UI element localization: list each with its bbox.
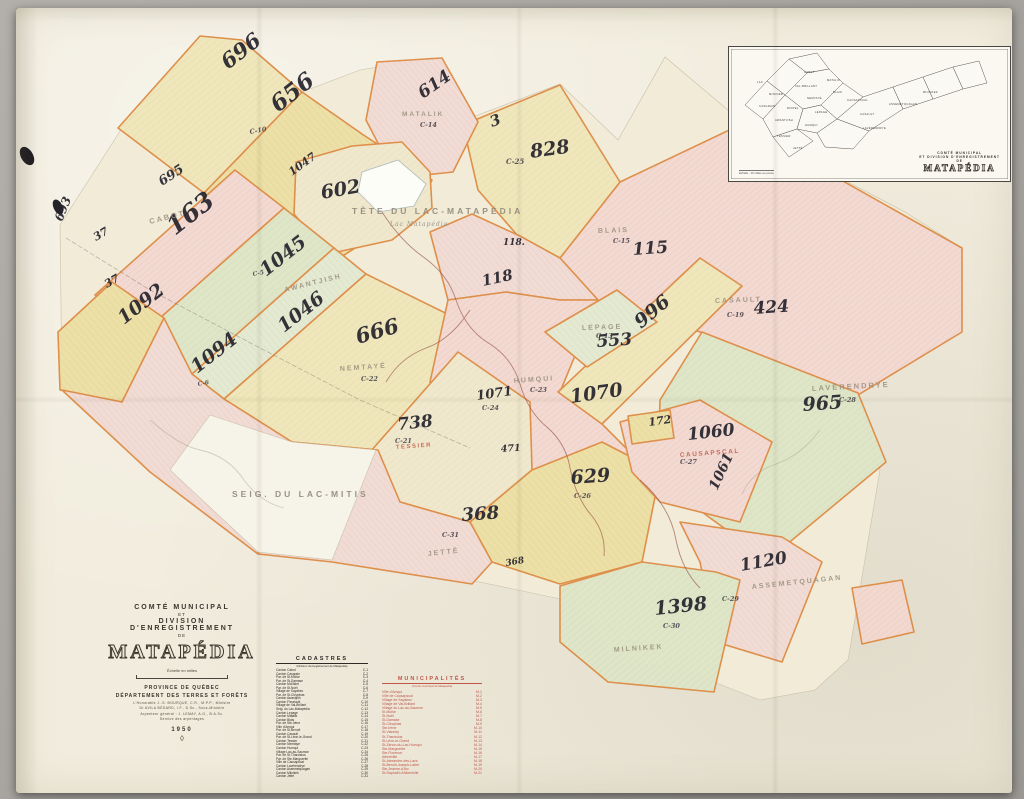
department-label: DÉPARTEMENT DES TERRES ET FORÊTS	[108, 693, 256, 699]
map-label: CABOT	[804, 70, 815, 74]
municipalites-title: MUNICIPALITÉS	[382, 676, 482, 684]
map-label: C-14	[420, 121, 437, 129]
map-label: C-28	[839, 396, 856, 404]
title-line: ET	[108, 612, 256, 617]
inset-townships	[745, 53, 987, 157]
map-title-block: COMTÉ MUNICIPAL ET DIVISION D'ENREGISTRE…	[108, 604, 256, 743]
title-line: DE	[108, 633, 256, 638]
detached-parcel	[852, 580, 914, 644]
scale-block: Échelle en milles	[108, 668, 256, 679]
map-label: MATALIK	[827, 78, 840, 82]
province-label: PROVINCE DE QUÉBEC	[108, 685, 256, 691]
map-label: C-13	[596, 332, 613, 340]
table-row: Canton JettéC-31	[276, 775, 368, 779]
map-label: C-27	[680, 458, 697, 466]
map-label: C-15	[613, 237, 630, 245]
map-label: C-31	[442, 531, 459, 539]
photographed-map-sheet: 6966566956933737104760261438281631045104…	[0, 0, 1024, 799]
cadastres-title: CADASTRES	[276, 656, 368, 664]
parcel-count-label: 965	[802, 391, 843, 416]
map-label: ASSEMETQUAGAN	[889, 102, 917, 106]
map-label: C-29	[722, 595, 739, 603]
map-label: SEIG. DU LAC-MITIS	[232, 489, 369, 499]
map-label: BLAIS	[833, 90, 842, 94]
map-label: TÊTE DU LAC-MATAPÉDIA	[352, 205, 523, 216]
parcel-count-label: 471	[500, 443, 521, 455]
map-label: CAUSAPSCAL	[847, 98, 868, 102]
map-label: Lac Matapédia	[389, 221, 448, 228]
ink-mark	[17, 144, 37, 167]
parcel-count-label: 368	[461, 502, 500, 526]
cadastres-table: CADASTRES (Division d'enregistrement de …	[276, 656, 368, 779]
map-label: TESSIER	[777, 134, 791, 138]
map-label: C-25	[506, 157, 524, 166]
scale-caption: Échelle en milles	[167, 668, 197, 673]
map-label: C-26	[574, 492, 591, 500]
inset-caption: COMTÉ MUNICIPAL ET DIVISION D'ENREGISTRE…	[919, 151, 1000, 173]
map-label: C-19	[727, 311, 744, 319]
map-label: LAC	[757, 80, 763, 84]
township-shape	[560, 562, 740, 692]
inset-locator-map: LACMcNIDERCABOTMATALIKBLAISCASGRAINRIOPE…	[728, 46, 1011, 182]
surveyor-credit: Arpenteur général : J. LEMAY, A.G., B.A.…	[108, 712, 256, 716]
parcel-count-label: 115	[632, 238, 669, 260]
inset-county-name: MATAPÉDIA	[919, 163, 1000, 173]
scale-bar	[136, 675, 228, 679]
map-label: MILNIKEK	[923, 90, 938, 94]
map-label: LEPAGE	[582, 324, 622, 332]
municipalites-subtitle: (Comté municipal de Matapédia)	[382, 684, 482, 688]
map-label: VAL-BRILLANT	[795, 84, 817, 88]
parcel-count-label: 118.	[503, 238, 525, 248]
map-label: CASGRAIN	[759, 104, 775, 108]
municipalites-table: MUNICIPALITÉS (Comté municipal de Matapé…	[382, 676, 482, 775]
map-label: C-30	[663, 622, 680, 630]
map-label: CASAULT	[860, 112, 874, 116]
county-name-title: MATAPÉDIA	[108, 641, 256, 664]
map-label: C-24	[482, 404, 499, 412]
minister-credit: L'Honorable J.-S. BOURQUE, C.R., M.P.P.,…	[108, 701, 256, 705]
map-label: McNIDER	[769, 92, 783, 96]
parcel-count-label: 738	[396, 411, 434, 435]
map-label: C-23	[530, 386, 547, 394]
map-label: BLAIS	[598, 227, 629, 235]
map-label: C-22	[361, 375, 378, 383]
title-line: DIVISION D'ENREGISTREMENT	[108, 618, 256, 632]
title-line: COMTÉ MUNICIPAL	[108, 604, 256, 611]
parcel-count-label: 629	[570, 464, 611, 489]
cadastres-rows: Canton CabotC-1Canton CasgrainC-2Par. de…	[276, 669, 368, 779]
map-label: RIOPEL	[787, 106, 799, 110]
map-label: AWANTJISH	[775, 118, 793, 122]
paper-sheet: 6966566956933737104760261438281631045104…	[16, 8, 1012, 793]
map-label: HUMQUI	[805, 123, 818, 127]
municipalites-rows: Ville d'AmquiM-1Ville de CausapscalM-2Vi…	[382, 690, 482, 776]
table-row: St-Raphaël-d'AlbertvilleM-21	[382, 771, 482, 775]
ornament-glyph: ◊	[108, 734, 256, 743]
service-credit: Service des arpentages	[108, 717, 256, 721]
map-label: LEPAGE	[815, 110, 827, 114]
map-label: MATALIK	[402, 111, 444, 118]
inset-scale-note: Échelle : 10 milles au pouce	[739, 170, 774, 175]
deputy-credit: Dr AVILA BÉDARD, I.F., D.Sc., Sous-Minis…	[108, 706, 256, 710]
map-year: 1950	[108, 727, 256, 733]
